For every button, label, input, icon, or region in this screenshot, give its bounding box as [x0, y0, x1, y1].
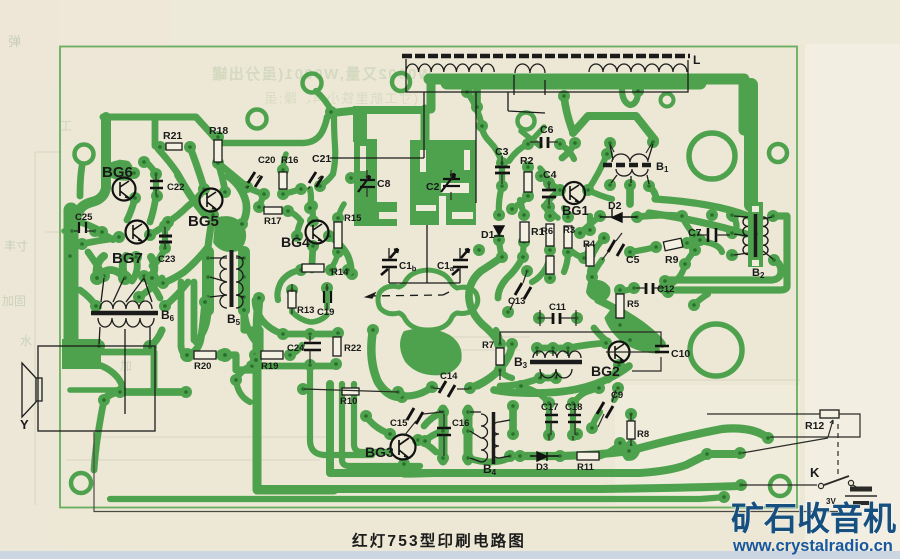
- svg-text:C7: C7: [688, 227, 702, 239]
- svg-text:R11: R11: [577, 462, 595, 473]
- svg-text:R5: R5: [627, 299, 640, 310]
- svg-text:(寸工航里铁小,4、躁;虽: (寸工航里铁小,4、躁;虽: [263, 91, 418, 106]
- svg-text:C15: C15: [390, 418, 408, 429]
- svg-text:www.crystalradio.cn: www.crystalradio.cn: [732, 537, 893, 555]
- svg-text:C5: C5: [626, 254, 640, 266]
- svg-text:D3: D3: [536, 462, 548, 473]
- svg-text:C20: C20: [258, 155, 275, 166]
- svg-text:矿石收音机: 矿石收音机: [731, 500, 896, 537]
- svg-text:R2: R2: [520, 155, 534, 167]
- svg-text:BG7: BG7: [112, 250, 143, 267]
- svg-text:BG1: BG1: [562, 203, 589, 218]
- svg-text:弹: 弹: [8, 34, 21, 49]
- svg-text:加固: 加固: [2, 294, 26, 308]
- svg-text:R19: R19: [261, 361, 278, 372]
- svg-text:BG6: BG6: [102, 164, 133, 181]
- svg-text:R3: R3: [563, 225, 575, 236]
- svg-text:D2: D2: [608, 200, 622, 212]
- svg-text:C11: C11: [549, 302, 567, 313]
- svg-text:C13: C13: [508, 296, 525, 307]
- svg-text:R6: R6: [541, 226, 553, 237]
- svg-text:C18: C18: [565, 402, 582, 413]
- svg-text:R8: R8: [637, 429, 649, 440]
- svg-text:R20: R20: [194, 361, 211, 372]
- svg-text:R12: R12: [805, 420, 824, 432]
- svg-text:红灯753型印刷电路图: 红灯753型印刷电路图: [352, 531, 526, 550]
- svg-text:R9: R9: [665, 254, 679, 266]
- svg-text:C19: C19: [317, 307, 334, 318]
- svg-text:R4: R4: [583, 239, 596, 250]
- svg-text:C12: C12: [657, 284, 674, 295]
- svg-text:R21: R21: [163, 130, 182, 142]
- svg-text:C25: C25: [75, 212, 93, 223]
- svg-text:R10: R10: [340, 396, 357, 407]
- svg-text:C17: C17: [541, 402, 558, 413]
- svg-text:R13: R13: [297, 305, 314, 316]
- svg-text:丰寸: 丰寸: [4, 239, 28, 253]
- svg-text:水: 水: [20, 334, 32, 348]
- svg-text:C4: C4: [543, 169, 557, 181]
- svg-text:D1: D1: [481, 229, 495, 241]
- svg-text:C22: C22: [167, 182, 184, 193]
- svg-text:R22: R22: [344, 343, 361, 354]
- svg-text:BG4: BG4: [281, 234, 310, 250]
- svg-text:K: K: [810, 465, 820, 480]
- svg-text:BG2: BG2: [591, 363, 620, 379]
- svg-text:R17: R17: [264, 216, 281, 227]
- svg-text:Y: Y: [20, 417, 29, 432]
- svg-text:工: 工: [60, 119, 72, 133]
- svg-text:BG5: BG5: [188, 213, 219, 230]
- svg-text:C16: C16: [452, 418, 469, 429]
- svg-text:C21: C21: [312, 153, 331, 165]
- svg-text:C2: C2: [426, 181, 440, 193]
- svg-text:C23: C23: [158, 254, 175, 265]
- svg-text:C14: C14: [440, 371, 458, 382]
- svg-text:C24: C24: [287, 343, 305, 354]
- svg-text:加: 加: [120, 359, 132, 373]
- svg-text:R7: R7: [482, 340, 494, 351]
- svg-text:BG3: BG3: [365, 444, 394, 460]
- svg-text:R15: R15: [344, 213, 362, 224]
- svg-text:R16: R16: [281, 155, 298, 166]
- svg-text:C9: C9: [611, 390, 623, 401]
- svg-text:C6: C6: [540, 124, 554, 136]
- svg-text:L: L: [693, 53, 700, 67]
- svg-text:C3: C3: [495, 146, 509, 158]
- svg-text:R14: R14: [331, 267, 349, 278]
- svg-text:R18: R18: [209, 125, 228, 137]
- svg-text:C10: C10: [671, 348, 690, 360]
- svg-text:C8: C8: [377, 178, 391, 190]
